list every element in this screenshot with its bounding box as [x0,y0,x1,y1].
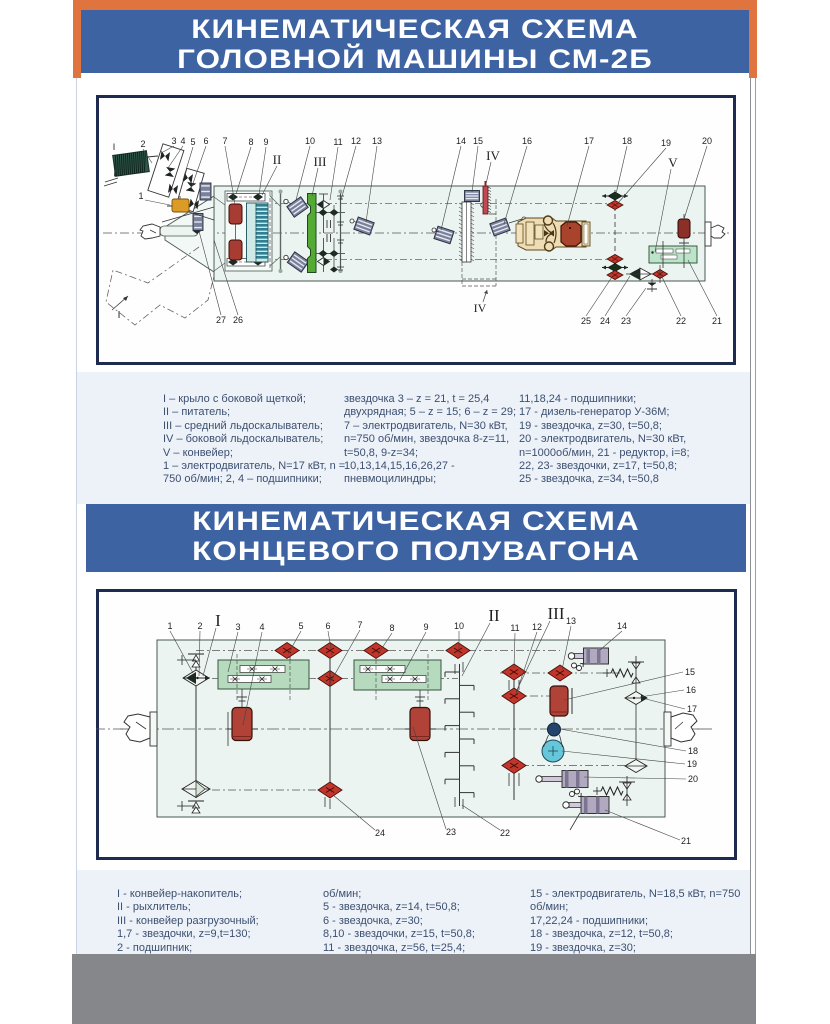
svg-text:21: 21 [681,836,691,846]
svg-text:11: 11 [510,623,519,633]
svg-text:15: 15 [473,136,483,146]
svg-text:8: 8 [389,623,394,633]
svg-text:I: I [118,310,121,321]
svg-text:9: 9 [263,137,268,147]
svg-text:19: 19 [661,138,671,148]
svg-text:III: III [548,604,565,623]
svg-text:3: 3 [171,136,176,146]
svg-text:22: 22 [676,316,686,326]
svg-text:16: 16 [686,685,696,695]
svg-text:17: 17 [584,136,594,146]
svg-text:25: 25 [581,316,591,326]
svg-text:23: 23 [621,316,631,326]
svg-text:2: 2 [140,139,145,149]
svg-text:V: V [668,155,678,170]
svg-text:19: 19 [687,759,697,769]
svg-text:21: 21 [712,316,722,326]
svg-text:2: 2 [197,621,202,631]
svg-text:22: 22 [500,828,510,838]
svg-text:1: 1 [138,191,143,201]
svg-text:III: III [314,154,327,169]
svg-text:27: 27 [216,315,226,325]
svg-text:17: 17 [687,704,697,714]
svg-text:4: 4 [180,136,185,146]
svg-text:8: 8 [248,137,253,147]
svg-text:18: 18 [688,746,698,756]
svg-text:15: 15 [685,667,695,677]
svg-text:14: 14 [617,621,627,631]
svg-text:13: 13 [566,616,576,626]
svg-text:3: 3 [235,622,240,632]
svg-text:I: I [113,142,116,152]
svg-text:II: II [488,606,500,625]
svg-text:16: 16 [522,136,532,146]
svg-text:26: 26 [233,315,243,325]
svg-text:14: 14 [456,136,466,146]
svg-text:23: 23 [446,827,456,837]
svg-text:4: 4 [259,622,264,632]
svg-text:5: 5 [298,621,303,631]
svg-text:IV: IV [474,301,487,315]
svg-text:12: 12 [351,136,361,146]
svg-text:IV: IV [486,148,500,163]
svg-text:1: 1 [167,621,172,631]
svg-text:12: 12 [532,622,542,632]
svg-text:5: 5 [190,137,195,147]
svg-text:18: 18 [622,136,632,146]
svg-text:24: 24 [600,316,610,326]
svg-text:20: 20 [702,136,712,146]
svg-text:6: 6 [325,621,330,631]
svg-text:10: 10 [305,136,315,146]
svg-text:20: 20 [688,774,698,784]
svg-text:10: 10 [454,621,464,631]
svg-text:6: 6 [203,136,208,146]
svg-text:13: 13 [372,136,382,146]
svg-text:II: II [273,152,282,167]
svg-text:11: 11 [333,137,342,147]
svg-text:I: I [215,611,221,630]
svg-text:7: 7 [222,136,227,146]
svg-text:9: 9 [423,622,428,632]
svg-text:7: 7 [357,620,362,630]
svg-text:24: 24 [375,828,385,838]
